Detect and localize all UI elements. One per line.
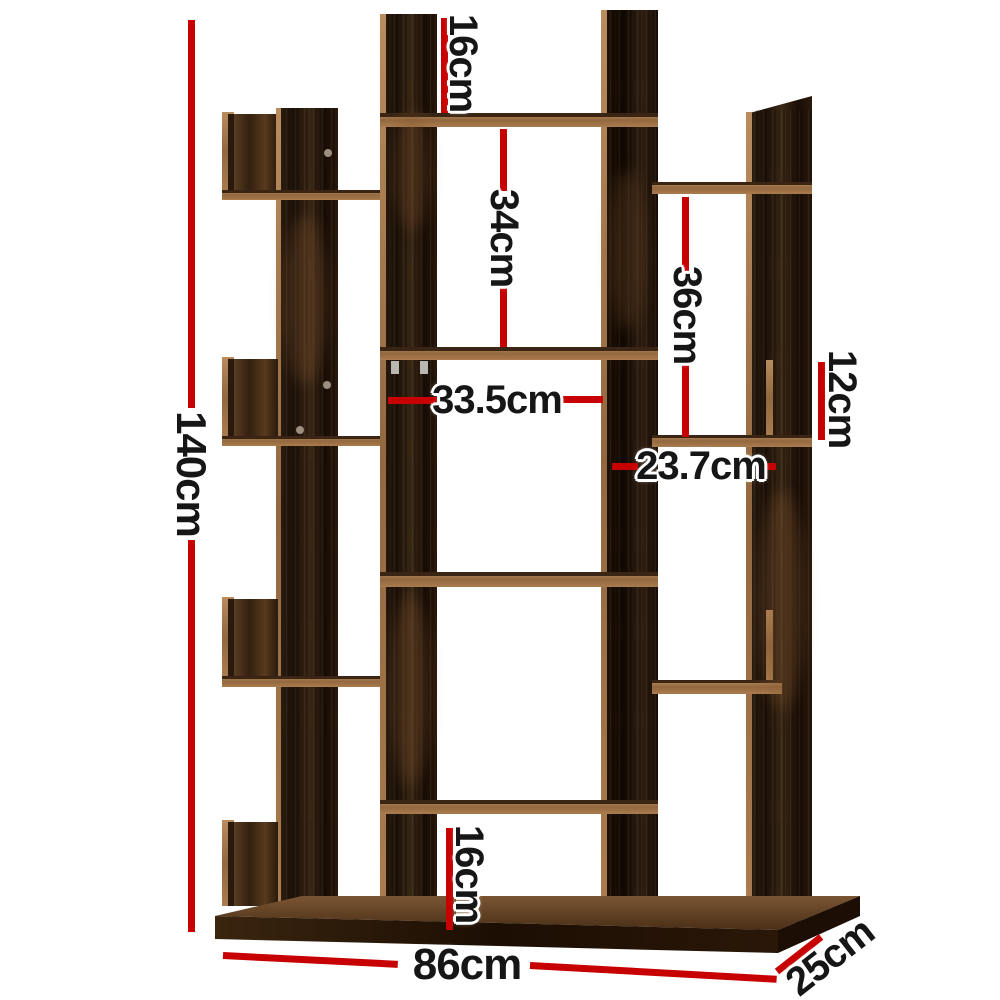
product-dimension-diagram: 140cm 16cm 34cm 36cm 12cm 33.5cm 23.7cm … [0,0,1000,1000]
dim-label-right-opening: 36cm [667,266,707,364]
dim-line-36-lower [682,360,689,437]
dim-line-33-5-left [388,397,437,404]
dim-label-right-small: 12cm [822,350,862,448]
dim-line-23-7-left [612,463,638,470]
dim-label-overall-width: 86cm [413,943,522,987]
dim-line-34-upper [500,129,507,191]
dim-line-33-5-right [556,396,603,403]
dim-label-height: 140cm [170,411,212,537]
dim-line-36-upper [682,197,689,271]
dim-line-34-lower [500,286,507,347]
dim-label-upper-middle: 34cm [484,189,524,287]
dim-line-height-lower [188,540,195,932]
dim-label-right-width: 23.7cm [636,446,766,486]
base-plinth [215,896,860,953]
dim-line-height-upper [188,20,195,408]
dim-label-top-opening: 16cm [443,14,483,112]
dim-label-middle-width: 33.5cm [432,380,562,420]
dim-label-bottom-opening: 16cm [449,825,489,923]
